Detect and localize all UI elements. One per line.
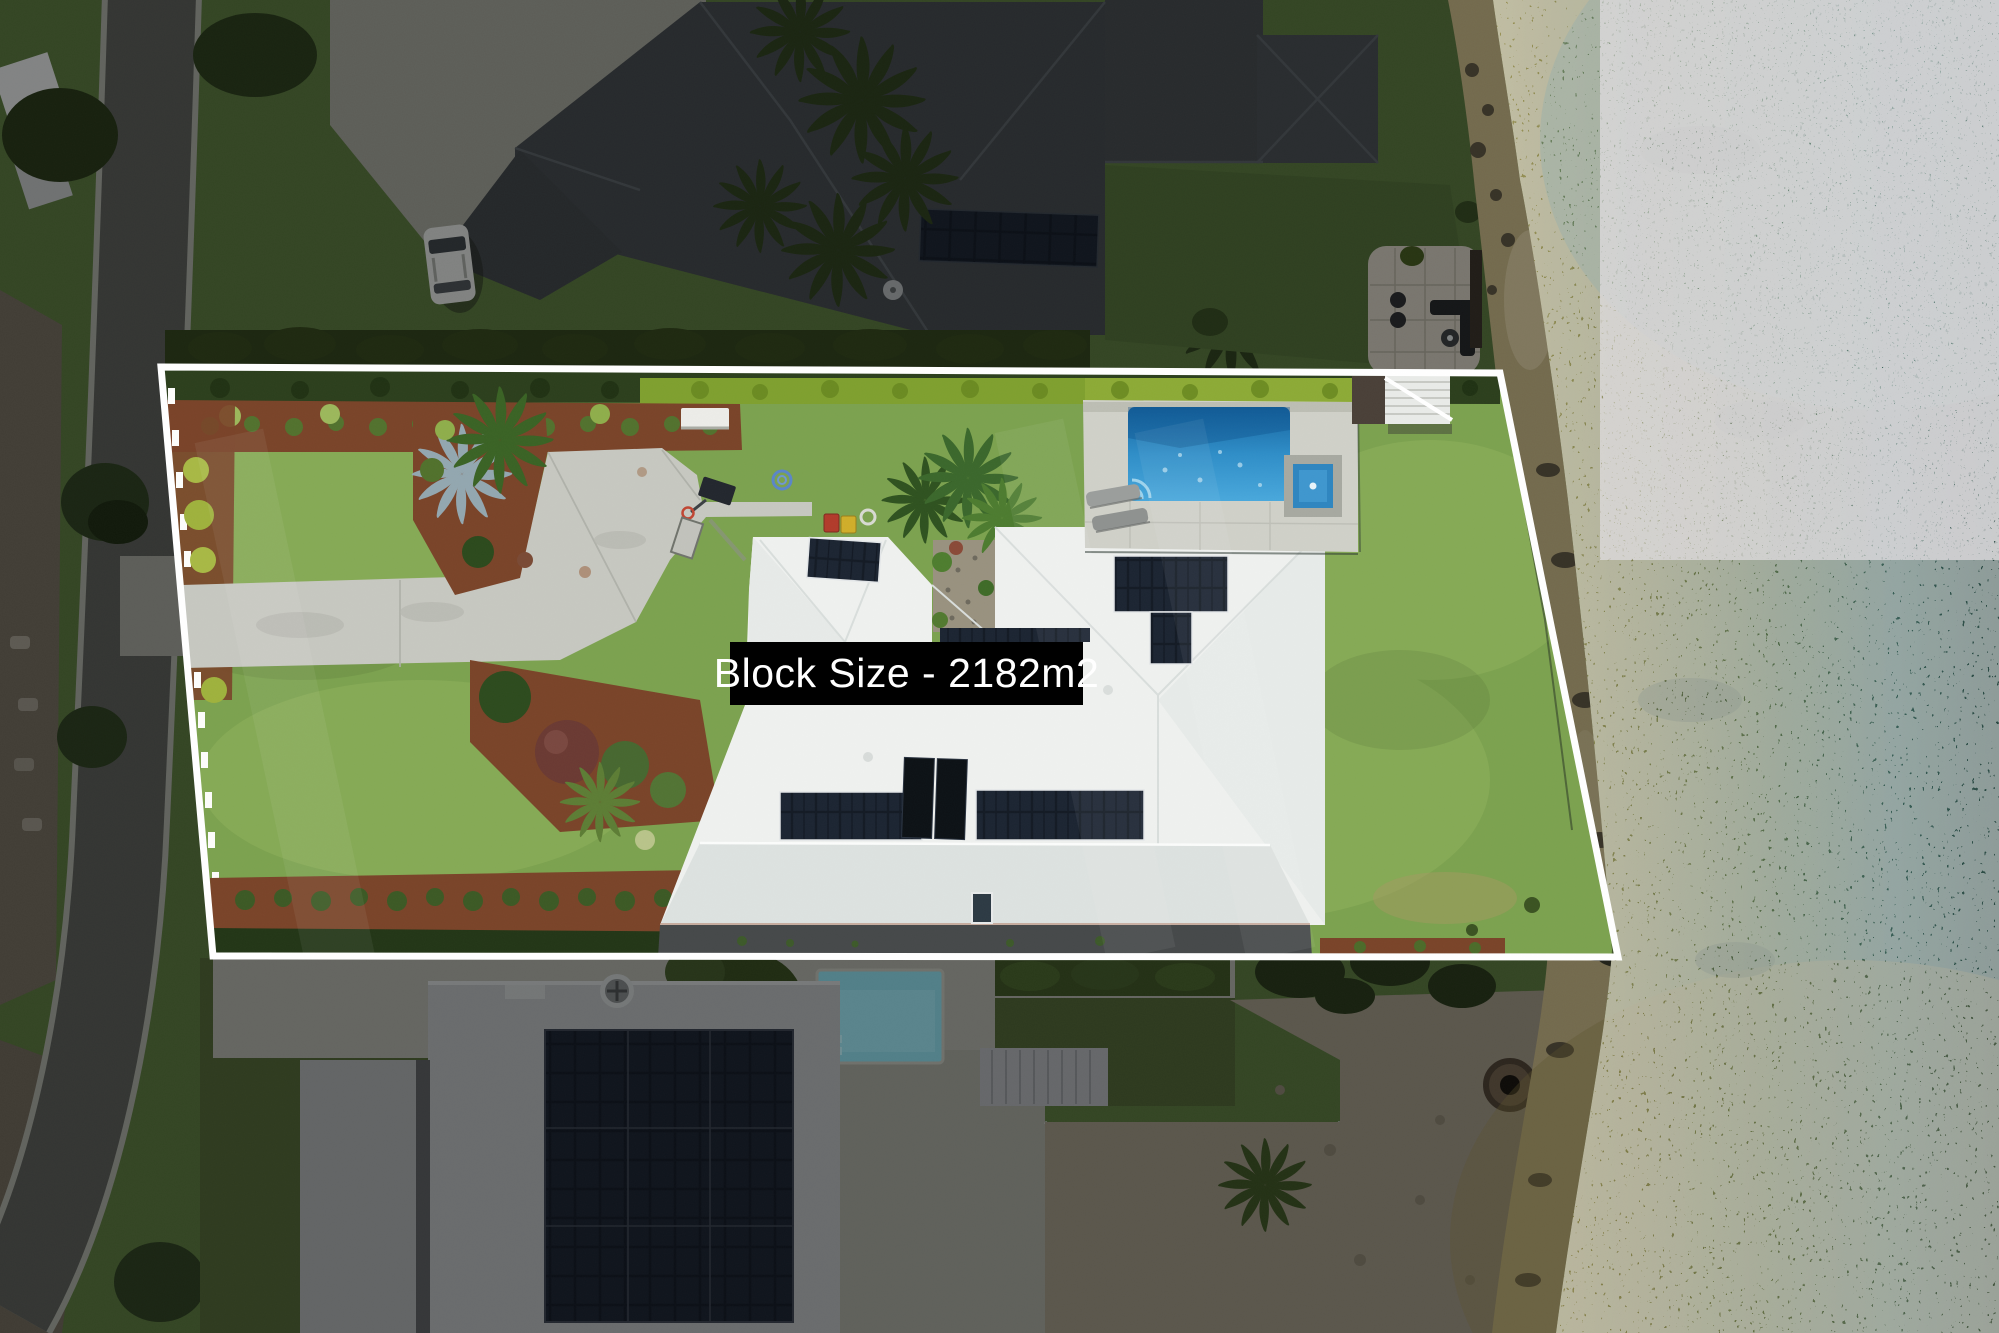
aerial-photo: Block Size - 2182m2: [0, 0, 1999, 1333]
block-size-label: Block Size - 2182m2: [730, 642, 1083, 705]
block-size-text: Block Size - 2182m2: [714, 650, 1100, 697]
